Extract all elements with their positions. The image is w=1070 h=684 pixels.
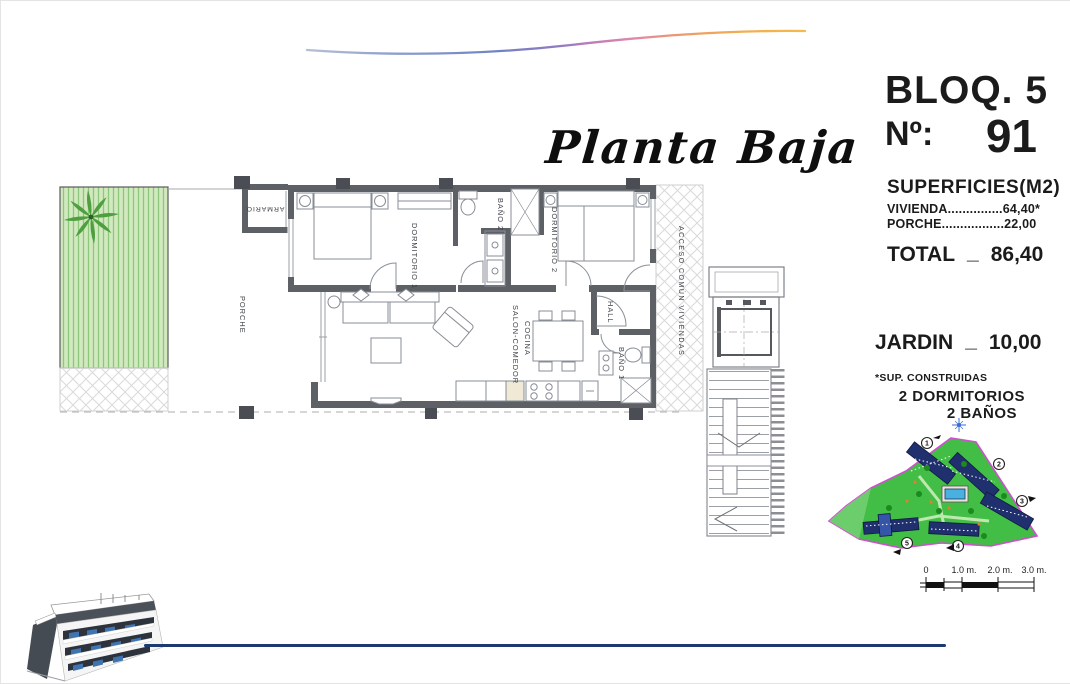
bottom-accent-line — [144, 644, 946, 647]
unit-number-value: 91 — [986, 115, 1037, 159]
scale-tick-2: 2.0 m. — [987, 565, 1012, 575]
building-3d-illustration — [27, 593, 163, 681]
feature-bedrooms: 2 DORMITORIOS — [899, 388, 1025, 405]
label-salon-line2: COCINA — [523, 321, 532, 356]
floor-plan-page: Planta Baja BLOQ. 5 Nº: 91 SUPERFICIES(M… — [0, 0, 1070, 684]
block-marker-2: 2 — [997, 462, 1001, 469]
label-dormitorio2: DORMITORIO 2 — [550, 207, 559, 273]
scale-bar: 0 1.0 m. 2.0 m. 3.0 m. — [916, 561, 1046, 595]
block-marker-1: 1 — [925, 441, 929, 448]
block-marker-5: 5 — [905, 541, 909, 548]
pool — [945, 489, 965, 499]
block-label: BLOQ. 5 — [885, 69, 1048, 113]
jardin-separator: _ — [965, 329, 977, 353]
gradient-wave-decoration — [301, 21, 811, 63]
surface-row-vivienda: VIVIENDA...............64,40* — [887, 202, 1040, 216]
total-label: TOTAL — [887, 243, 955, 267]
label-bano1: BAÑO 1 — [617, 347, 626, 380]
page-title: Planta Baja — [544, 121, 862, 174]
compass-icon — [952, 418, 966, 432]
total-row: TOTAL _ 86,40 — [887, 243, 1043, 267]
building-render — [13, 591, 323, 683]
total-separator: _ — [967, 241, 979, 265]
scale-segments — [926, 582, 1034, 588]
block-marker-4: 4 — [956, 544, 960, 551]
floor-plan-drawing: PORCHE ARMARIO DORMITORIO 1 BAÑO 2 DORMI… — [21, 171, 811, 561]
surface-row-porche: PORCHE.................22,00 — [887, 217, 1036, 231]
elevator-and-stairs — [707, 267, 784, 536]
scale-tick-3: 3.0 m. — [1021, 565, 1046, 575]
scale-labels: 0 1.0 m. 2.0 m. 3.0 m. — [923, 565, 1046, 575]
unit-number-row: Nº: 91 — [885, 115, 1037, 159]
unit-number-label: Nº: — [885, 115, 933, 154]
label-salon-line1: SALON-COMEDOR — [511, 305, 520, 384]
total-value: 86,40 — [991, 243, 1044, 267]
jardin-row: JARDIN _ 10,00 — [875, 331, 1041, 355]
jardin-label: JARDIN — [875, 331, 953, 355]
label-dormitorio1: DORMITORIO 1 — [410, 223, 419, 289]
label-bano2: BAÑO 2 — [496, 198, 505, 231]
surfaces-footnote: *SUP. CONSTRUIDAS — [875, 372, 987, 384]
site-plan-map: 1 2 3 4 5 — [819, 416, 1069, 561]
scale-tick-0: 0 — [923, 565, 928, 575]
label-armario: ARMARIO — [246, 205, 285, 212]
label-acceso-comun: ACCESO COMÚN VIVIENDAS — [677, 226, 686, 356]
scale-tick-1: 1.0 m. — [951, 565, 976, 575]
block-marker-3: 3 — [1020, 499, 1024, 506]
label-hall: HALL — [606, 301, 615, 324]
jardin-value: 10,00 — [989, 331, 1042, 355]
wave-line — [307, 31, 805, 54]
surfaces-title: SUPERFICIES(M2) — [887, 177, 1060, 199]
label-porche: PORCHE — [238, 296, 247, 334]
